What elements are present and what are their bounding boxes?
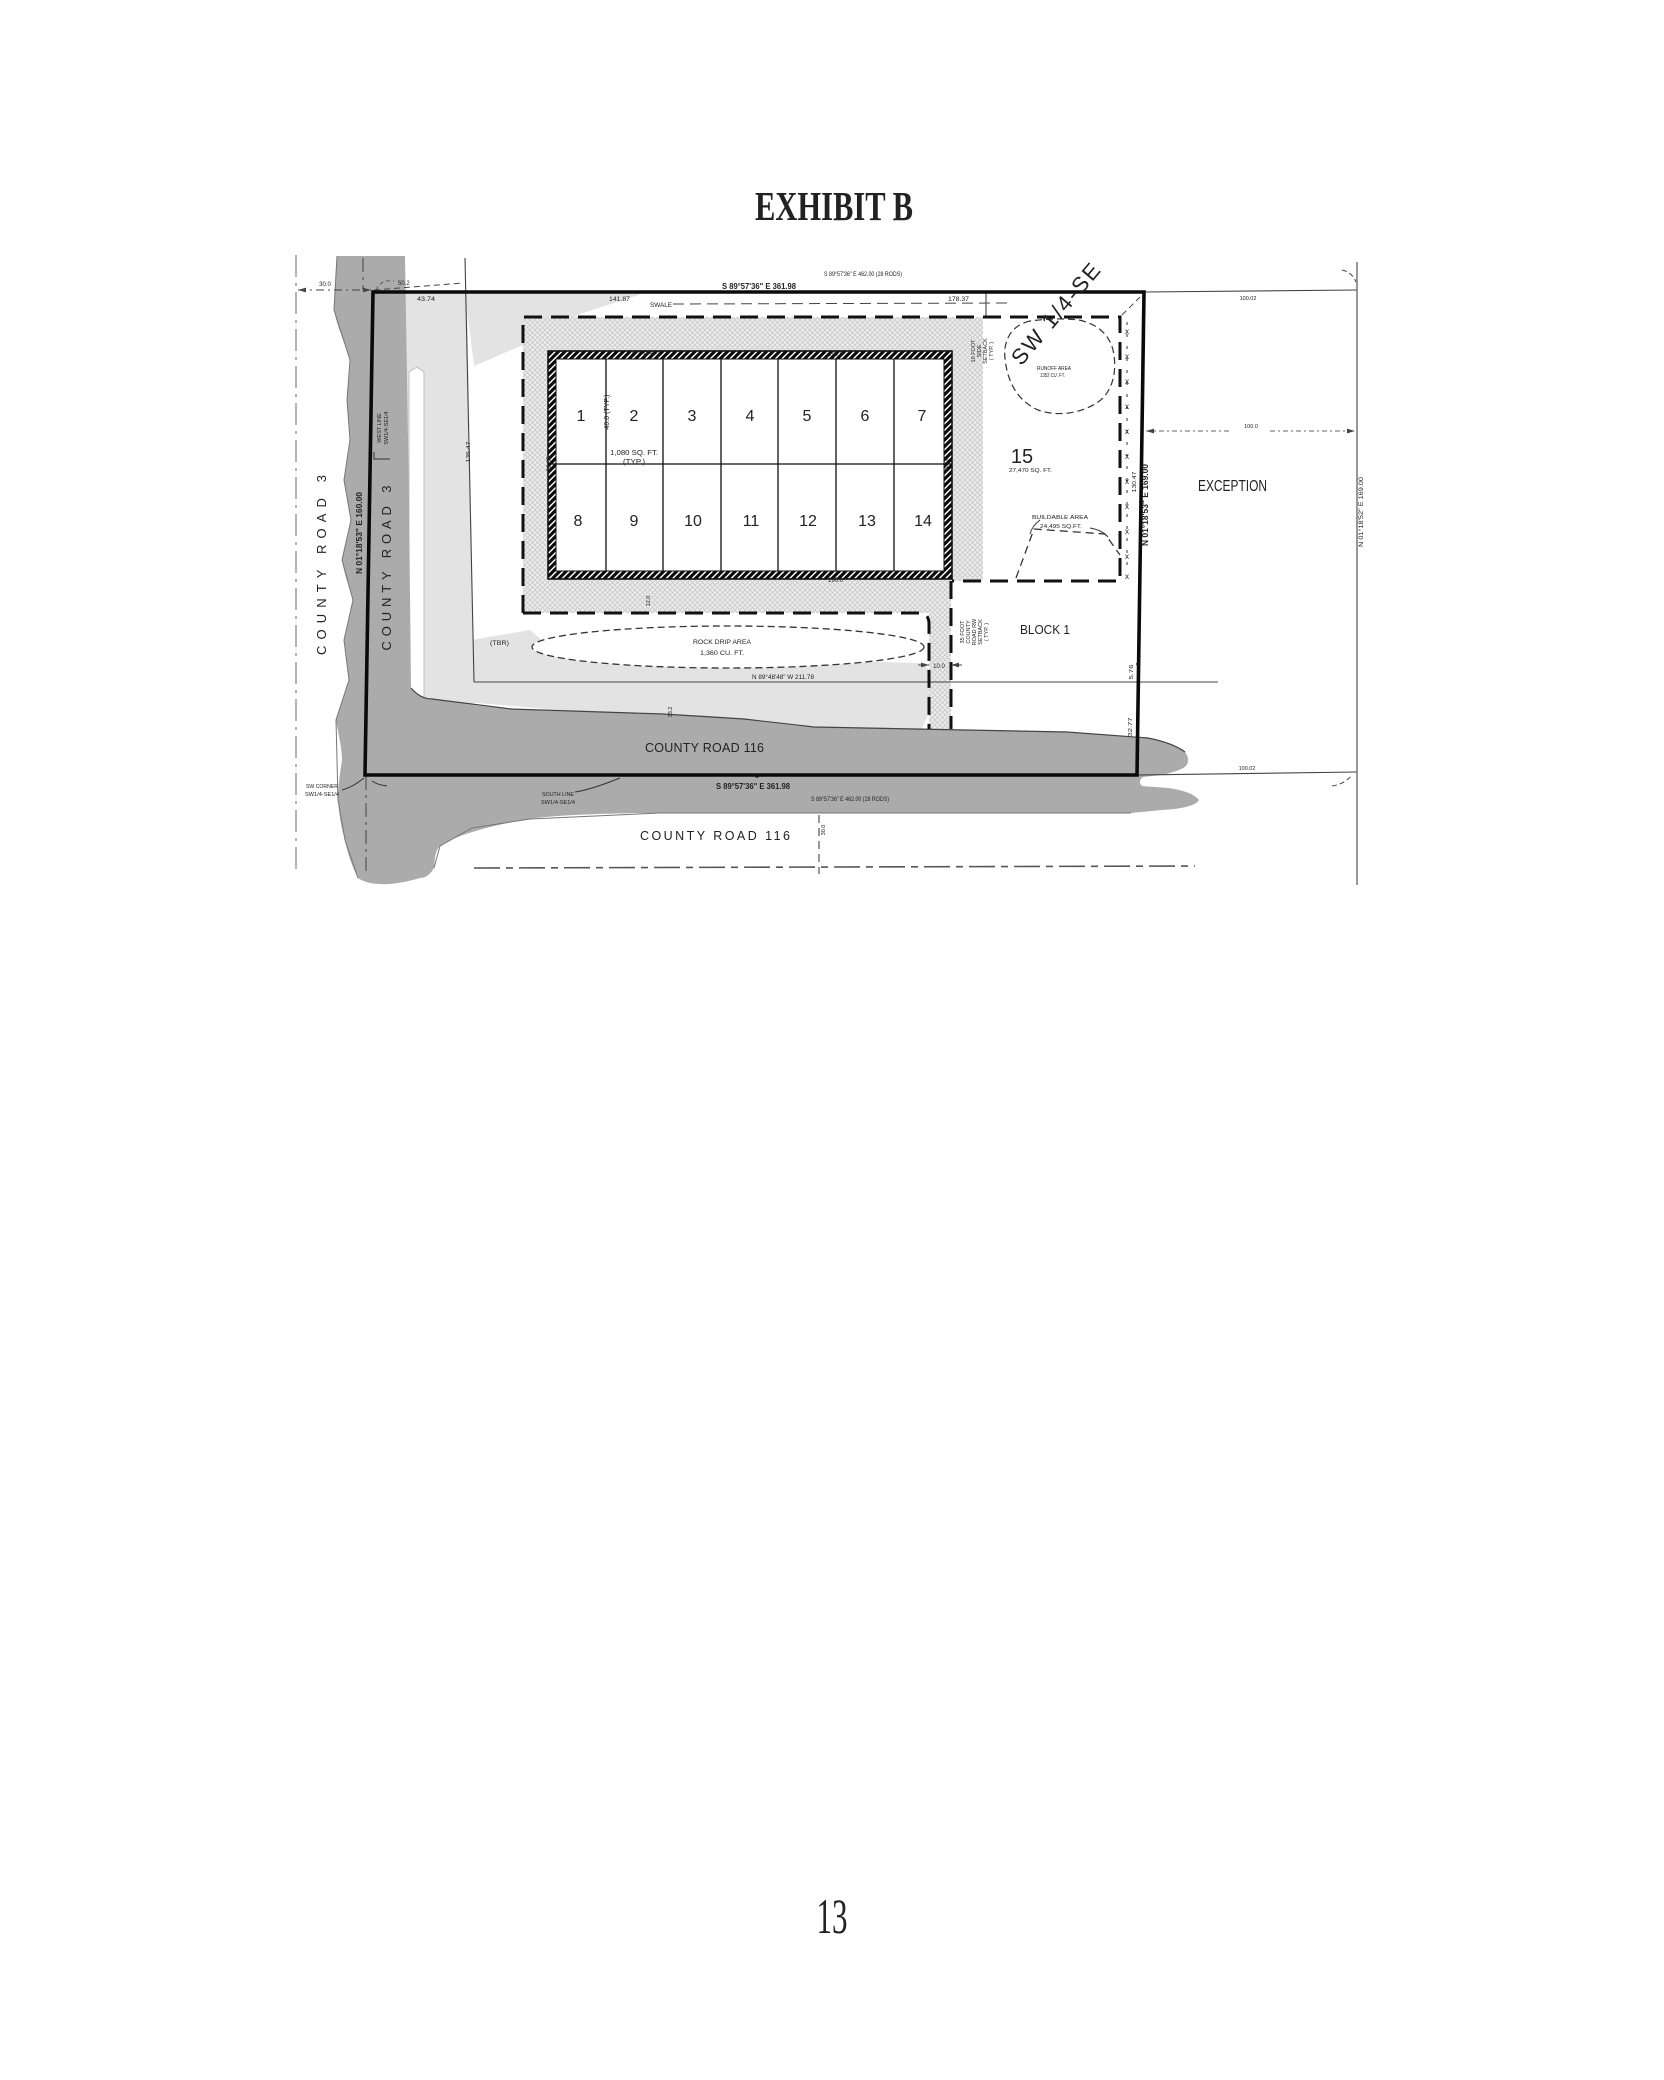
svg-text:27.0 (TYP.): 27.0 (TYP.): [630, 352, 660, 358]
svg-text:SW1/4-SE1/4: SW1/4-SE1/4: [384, 411, 390, 444]
svg-text:N 01°18'53" E 169.00: N 01°18'53" E 169.00: [1141, 463, 1150, 546]
svg-text:12.0: 12.0: [646, 596, 652, 607]
svg-text:SW1/4-SE1/4: SW1/4-SE1/4: [305, 792, 339, 798]
svg-text:S 89°57'36" E 462.00 (28 RODS: S 89°57'36" E 462.00 (28 RODS): [824, 272, 902, 278]
svg-text:RUNOFF AREA: RUNOFF AREA: [1037, 366, 1072, 372]
svg-text:x: x: [1125, 502, 1129, 511]
svg-text:x: x: [1125, 402, 1129, 411]
svg-text:x: x: [1125, 477, 1129, 486]
svg-text:12: 12: [799, 513, 817, 530]
svg-text:1: 1: [577, 408, 586, 425]
svg-text:S 89°57'36" E 361.98: S 89°57'36" E 361.98: [722, 281, 796, 291]
svg-text:( TYP. ): ( TYP. ): [989, 342, 995, 360]
svg-text:SW1/4-SE1/4: SW1/4-SE1/4: [541, 800, 575, 806]
svg-text:S 89°57'36" E 361.98: S 89°57'36" E 361.98: [716, 781, 790, 791]
svg-text:x: x: [1125, 452, 1129, 461]
svg-text:S 89°57'36" E 462.00 (28 RODS: S 89°57'36" E 462.00 (28 RODS): [811, 797, 889, 803]
svg-text:178.37: 178.37: [948, 297, 970, 303]
svg-text:98.05: 98.05: [944, 456, 950, 472]
svg-text:1,080 SQ. FT.: 1,080 SQ. FT.: [610, 450, 658, 457]
svg-text:BUILDABLE AREA: BUILDABLE AREA: [1032, 515, 1088, 521]
svg-text:1,360 CU. FT.: 1,360 CU. FT.: [700, 650, 744, 657]
svg-text:(TYP.): (TYP.): [623, 459, 645, 466]
svg-text:33.2: 33.2: [668, 707, 674, 718]
svg-text:130.47: 130.47: [1132, 472, 1138, 493]
svg-text:x: x: [1125, 427, 1129, 436]
svg-text:N 01°18'52" E 169.00: N 01°18'52" E 169.00: [1359, 476, 1365, 547]
svg-text:43.74: 43.74: [417, 297, 436, 303]
svg-text:32.77: 32.77: [1128, 718, 1134, 737]
svg-text:N 01°18'53" E 160.00: N 01°18'53" E 160.00: [355, 491, 364, 574]
svg-text:COUNTY ROAD 3: COUNTY ROAD 3: [314, 475, 329, 655]
svg-text:x: x: [1125, 552, 1129, 561]
svg-text:N 89°48'48" W 211.78: N 89°48'48" W 211.78: [752, 675, 815, 681]
svg-text:14: 14: [914, 513, 932, 530]
svg-text:SWALE: SWALE: [650, 303, 672, 309]
svg-text:100.02: 100.02: [1239, 766, 1256, 772]
svg-text:5: 5: [803, 408, 812, 425]
svg-text:x: x: [1125, 352, 1129, 361]
svg-text:8: 8: [574, 513, 583, 530]
svg-text:10.0: 10.0: [933, 664, 945, 670]
svg-text:50.2: 50.2: [398, 281, 410, 287]
svg-text:30.0: 30.0: [319, 282, 331, 288]
svg-text:11: 11: [743, 513, 760, 530]
svg-text:3: 3: [688, 408, 697, 425]
svg-text:10: 10: [684, 513, 702, 530]
svg-text:98.05: 98.05: [547, 456, 553, 472]
svg-text:( TYP. ): ( TYP. ): [984, 623, 990, 641]
svg-text:WEST LINE: WEST LINE: [377, 413, 383, 443]
svg-text:EXCEPTION: EXCEPTION: [1198, 478, 1267, 495]
svg-text:(TBR): (TBR): [490, 640, 509, 647]
svg-text:COUNTY ROAD 116: COUNTY ROAD 116: [640, 829, 790, 843]
svg-text:190.0: 190.0: [828, 578, 844, 584]
svg-text:2: 2: [630, 408, 639, 425]
svg-text:ROCK DRIP AREA: ROCK DRIP AREA: [693, 639, 752, 646]
svg-text:x: x: [1125, 527, 1129, 536]
svg-text:24,495 SQ.FT.: 24,495 SQ.FT.: [1040, 524, 1083, 530]
svg-text:6: 6: [861, 408, 870, 425]
svg-text:SOUTH LINE: SOUTH LINE: [542, 792, 574, 798]
svg-text:40.0 (TYP.): 40.0 (TYP.): [604, 395, 611, 430]
svg-text:5.76: 5.76: [1129, 665, 1135, 680]
svg-text:EXHIBIT B: EXHIBIT B: [755, 183, 913, 229]
svg-text:x: x: [1125, 377, 1129, 386]
svg-text:COUNTY ROAD 116: COUNTY ROAD 116: [645, 741, 764, 755]
svg-text:100.02: 100.02: [1240, 296, 1257, 302]
svg-text:100.0: 100.0: [1244, 424, 1258, 430]
svg-text:27,470 SQ. FT.: 27,470 SQ. FT.: [1009, 468, 1053, 474]
svg-text:9: 9: [630, 513, 639, 530]
svg-text:15: 15: [1011, 446, 1033, 468]
svg-text:1352 CU. FT.: 1352 CU. FT.: [1040, 373, 1065, 379]
svg-text:x: x: [1125, 572, 1129, 581]
svg-text:141.87: 141.87: [609, 297, 631, 303]
svg-text:SW CORNER: SW CORNER: [306, 784, 338, 790]
svg-text:30.0: 30.0: [821, 825, 827, 836]
svg-text:4: 4: [746, 408, 755, 425]
svg-text:BLOCK 1: BLOCK 1: [1020, 622, 1070, 637]
svg-text:190.0: 190.0: [828, 352, 844, 358]
svg-text:135.47: 135.47: [466, 442, 472, 463]
svg-text:13: 13: [817, 1888, 848, 1944]
svg-text:x: x: [1125, 327, 1129, 336]
svg-text:13: 13: [858, 513, 876, 530]
svg-text:7: 7: [918, 408, 927, 425]
